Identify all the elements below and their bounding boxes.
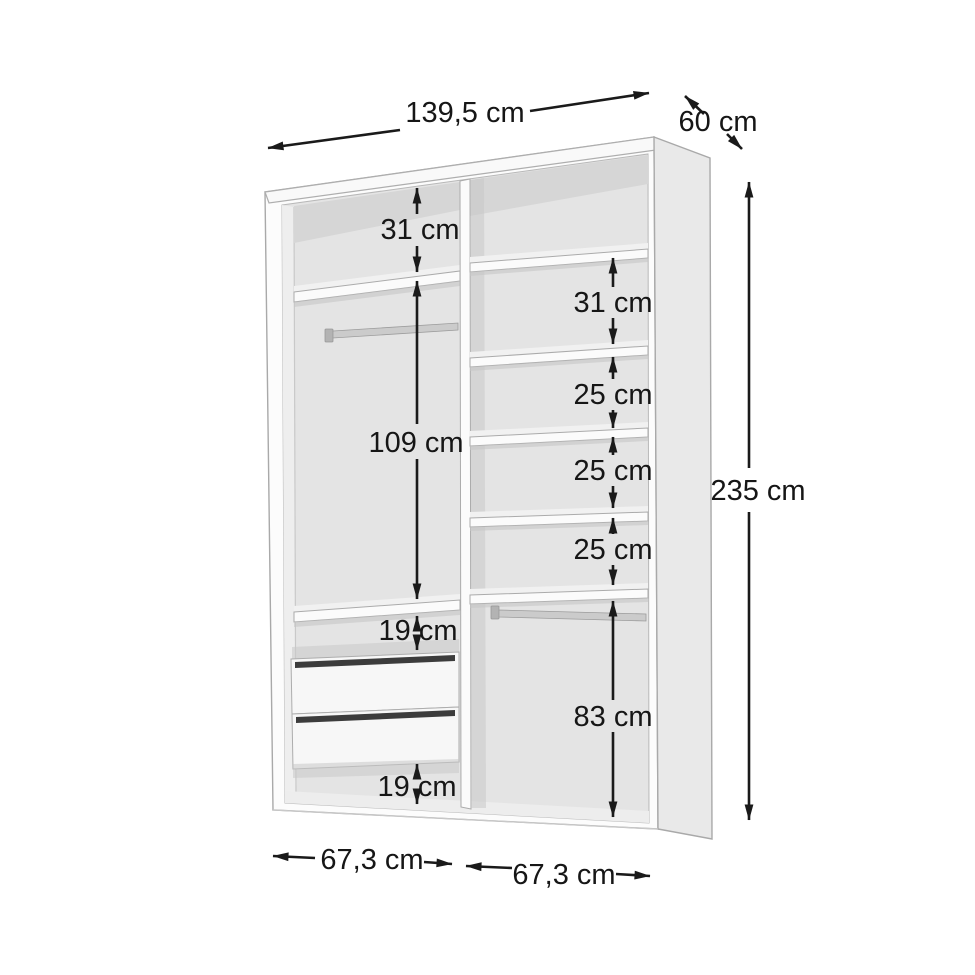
- left-gap-below-drawers-label: 19 cm: [378, 771, 457, 803]
- dim-left-column-width: 67,3 cm: [273, 844, 452, 876]
- wardrobe-dimension-diagram: 139,5 cm 60 cm 235 cm 31 cm 109 cm: [0, 0, 975, 975]
- overall-height-label: 235 cm: [710, 475, 805, 507]
- wardrobe-body: [265, 137, 712, 839]
- hanging-rod-left-bracket: [325, 329, 333, 342]
- dim-line: [424, 862, 452, 864]
- divider-panel: [460, 179, 471, 809]
- right-hanging-label: 83 cm: [574, 701, 653, 733]
- right-gap-1-label: 31 cm: [574, 287, 653, 319]
- left-gap-above-drawers-label: 19 cm: [379, 615, 458, 647]
- wardrobe-diagram-svg: 139,5 cm 60 cm 235 cm 31 cm 109 cm: [0, 0, 975, 975]
- overall-width-label: 139,5 cm: [405, 97, 524, 129]
- dim-line: [530, 93, 649, 111]
- right-column-width-label: 67,3 cm: [512, 859, 615, 891]
- right-gap-4-label: 25 cm: [574, 534, 653, 566]
- overall-depth-label: 60 cm: [679, 106, 758, 138]
- dim-line: [466, 866, 512, 868]
- right-gap-3-label: 25 cm: [574, 455, 653, 487]
- dim-left-gap-above-drawers: 19 cm: [379, 615, 458, 650]
- dim-line: [616, 874, 650, 876]
- dim-overall-depth: 60 cm: [679, 96, 758, 149]
- dim-line: [268, 130, 400, 148]
- dim-line: [273, 856, 315, 858]
- left-hanging-label: 109 cm: [368, 427, 463, 459]
- hanging-rod-right-bracket: [491, 606, 499, 619]
- left-top-gap-label: 31 cm: [381, 214, 460, 246]
- right-gap-2-label: 25 cm: [574, 379, 653, 411]
- left-column-width-label: 67,3 cm: [320, 844, 423, 876]
- dim-right-column-width: 67,3 cm: [466, 859, 650, 891]
- dim-overall-height: 235 cm: [710, 182, 805, 820]
- side-panel-right: [654, 137, 712, 839]
- dim-overall-width: 139,5 cm: [268, 93, 649, 148]
